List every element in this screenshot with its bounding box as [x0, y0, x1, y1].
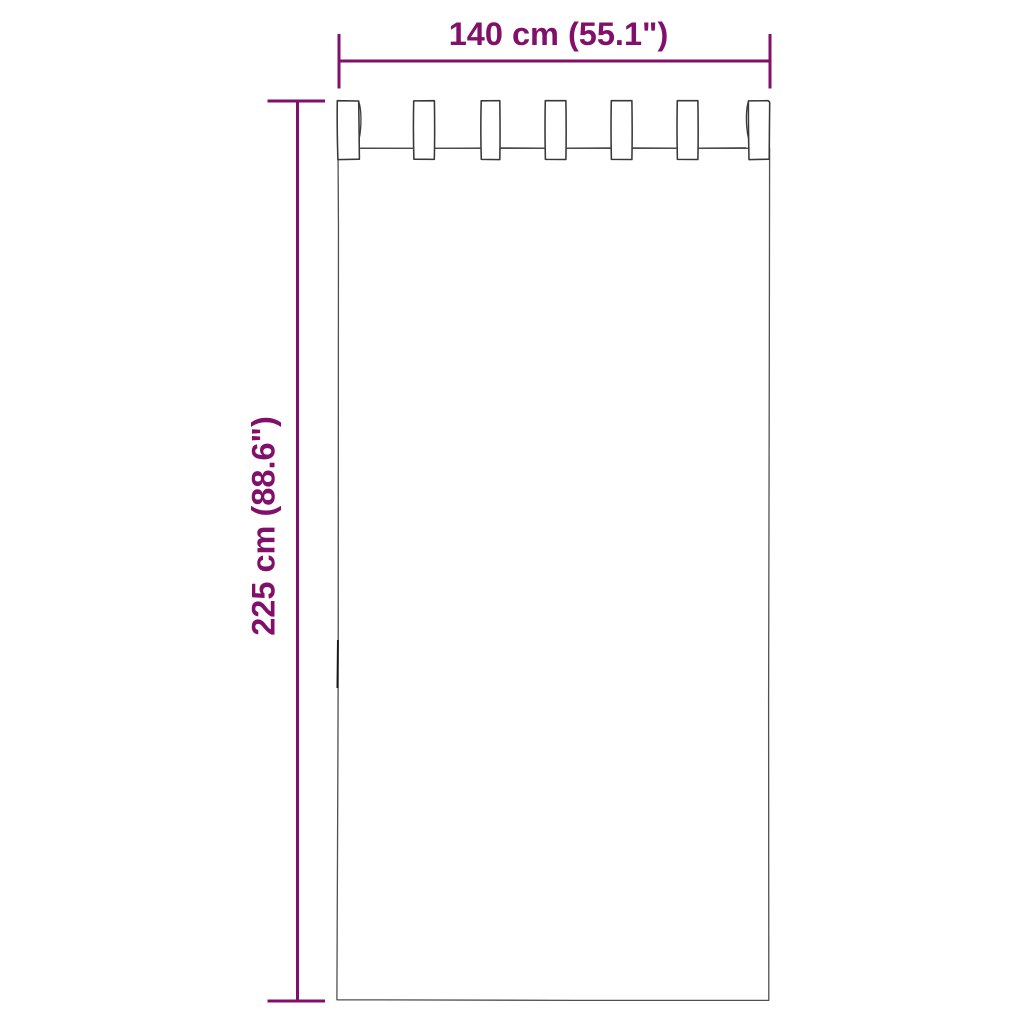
svg-text:140 cm (55.1"): 140 cm (55.1") [449, 16, 669, 52]
svg-text:225 cm (88.6"): 225 cm (88.6") [246, 416, 282, 636]
